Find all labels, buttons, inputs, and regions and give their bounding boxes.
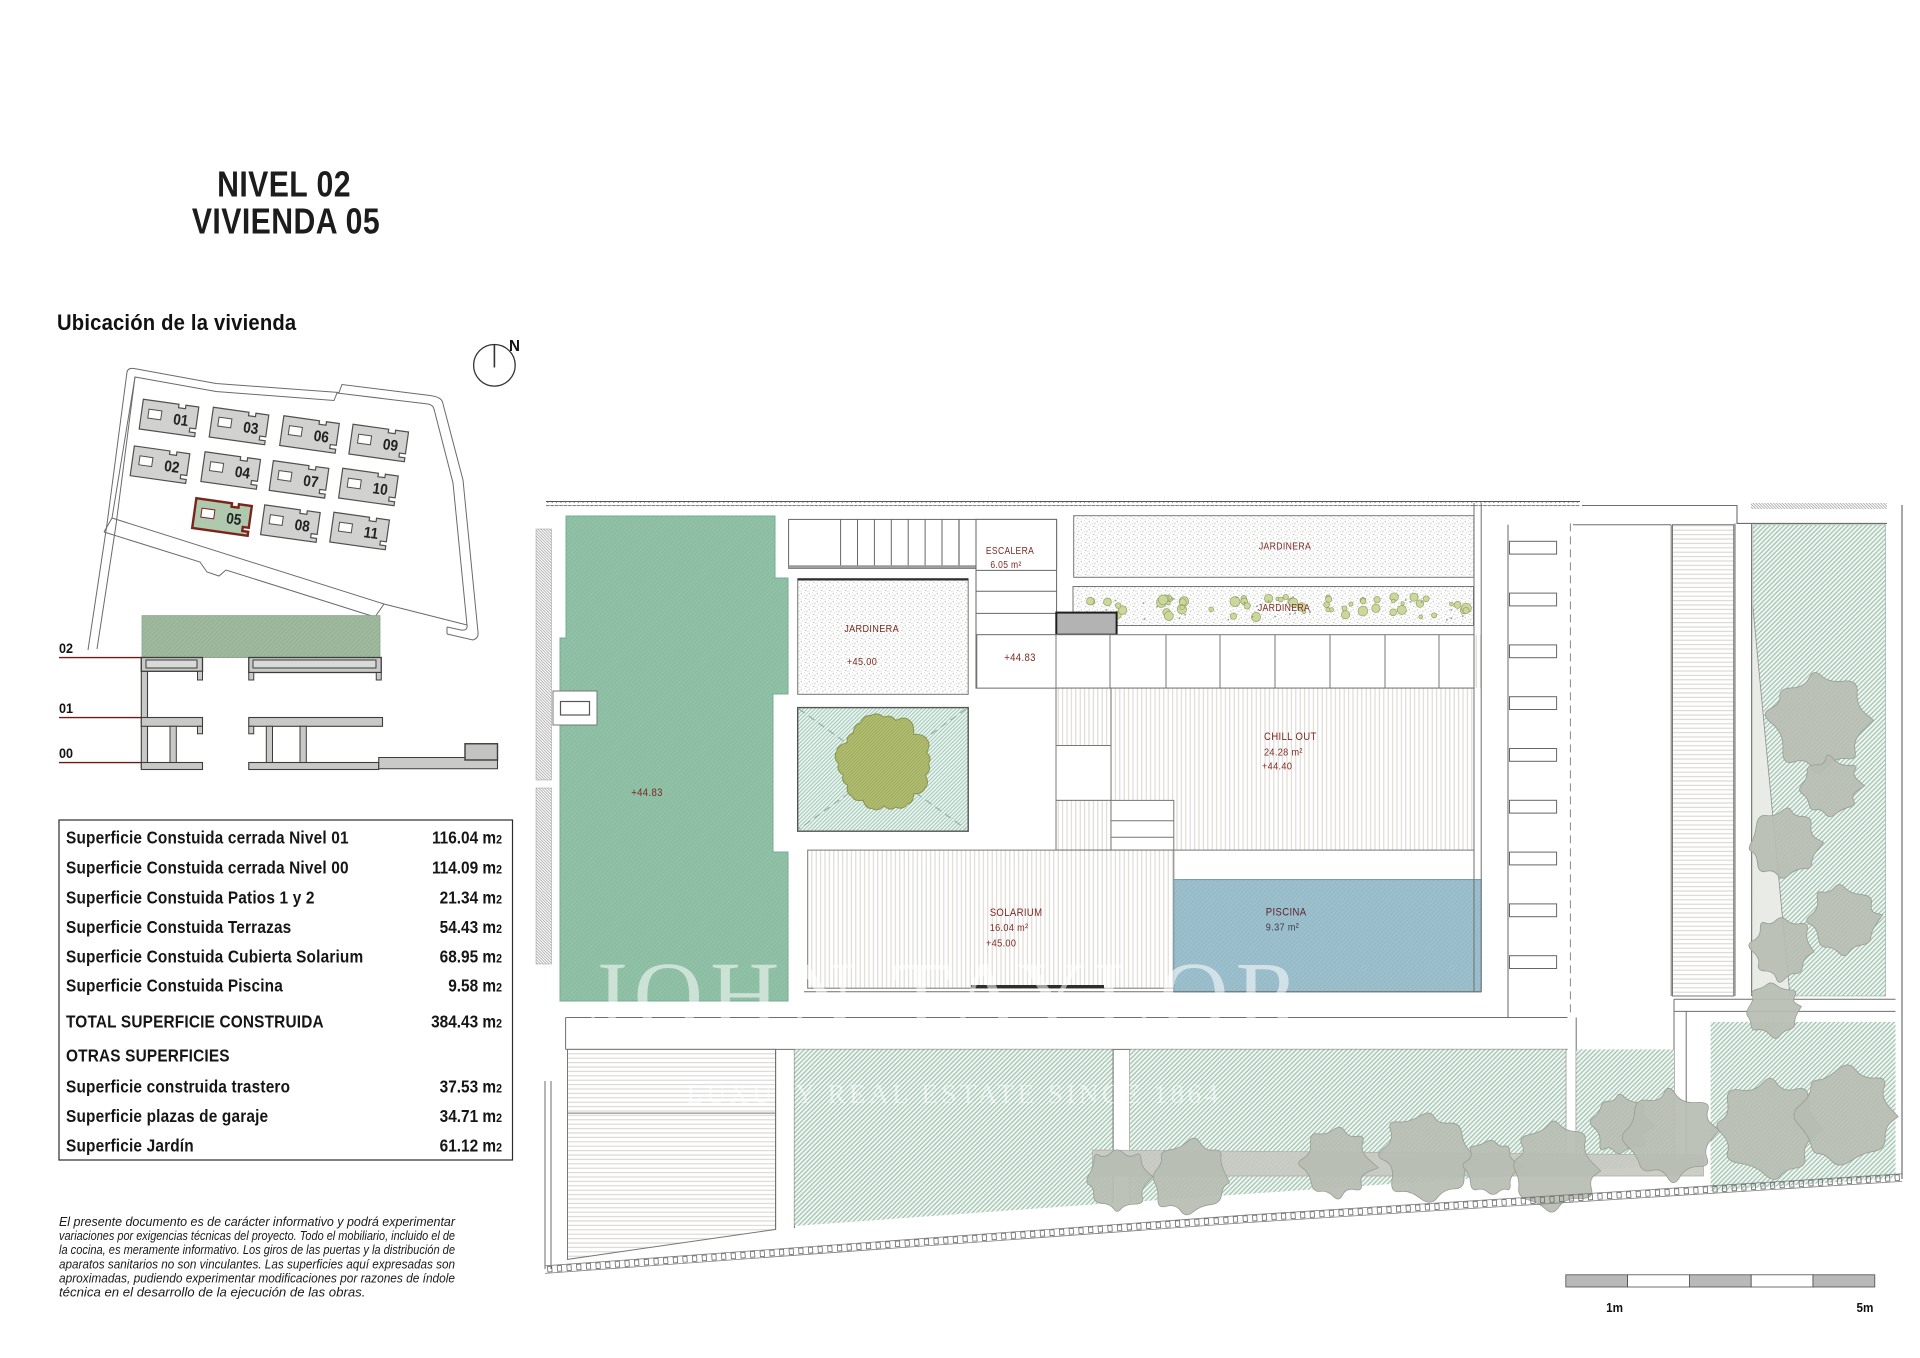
svg-text:Superficie Constuida Piscina: Superficie Constuida Piscina <box>66 977 284 996</box>
svg-text:aparatos sanitarios no son vin: aparatos sanitarios no son vinculantes. … <box>59 1256 455 1271</box>
svg-text:ESCALERA: ESCALERA <box>986 545 1035 556</box>
svg-text:Superficie Constuida Patios 1: Superficie Constuida Patios 1 y 2 <box>66 889 315 908</box>
svg-text:08: 08 <box>293 517 310 536</box>
svg-text:24.28 m²: 24.28 m² <box>1264 747 1303 759</box>
svg-text:02: 02 <box>59 640 73 656</box>
svg-text:Superficie Constuida cerrada N: Superficie Constuida cerrada Nivel 00 <box>66 859 349 878</box>
svg-text:CHILL OUT: CHILL OUT <box>1264 731 1317 743</box>
svg-text:NIVEL 02: NIVEL 02 <box>217 165 351 205</box>
svg-text:1m: 1m <box>1606 1300 1623 1315</box>
svg-text:34.71 m2: 34.71 m2 <box>440 1107 502 1126</box>
svg-text:+45.00: +45.00 <box>847 656 877 668</box>
svg-text:Superficie Constuida cerrada N: Superficie Constuida cerrada Nivel 01 <box>66 829 349 848</box>
svg-text:6.05 m²: 6.05 m² <box>990 559 1021 570</box>
svg-text:LUXURY REAL ESTATE SINCE 1864: LUXURY REAL ESTATE SINCE 1864 <box>686 1079 1221 1109</box>
svg-text:07: 07 <box>302 473 319 492</box>
svg-text:Superficie Jardín: Superficie Jardín <box>66 1137 194 1156</box>
svg-text:JOHN TAYLOR: JOHN TAYLOR <box>589 942 1306 1049</box>
svg-text:61.12 m2: 61.12 m2 <box>440 1137 502 1156</box>
svg-text:variaciones por exigencias téc: variaciones por exigencias técnicas del … <box>59 1228 455 1243</box>
svg-text:11: 11 <box>363 524 380 543</box>
svg-text:68.95 m2: 68.95 m2 <box>440 948 502 967</box>
svg-text:Superficie Constuida Cubierta: Superficie Constuida Cubierta Solarium <box>66 948 363 967</box>
svg-text:9.58 m2: 9.58 m2 <box>448 977 502 996</box>
svg-text:Superficie construida trastero: Superficie construida trastero <box>66 1078 290 1097</box>
svg-text:116.04 m2: 116.04 m2 <box>432 829 502 848</box>
svg-text:aproximadas, pudiendo experime: aproximadas, pudiendo experimentar modif… <box>59 1270 455 1285</box>
svg-text:VIVIENDA 05: VIVIENDA 05 <box>192 202 380 242</box>
svg-text:TOTAL SUPERFICIE CONSTRUIDA: TOTAL SUPERFICIE CONSTRUIDA <box>66 1013 324 1032</box>
svg-text:09: 09 <box>382 436 399 455</box>
svg-text:21.34 m2: 21.34 m2 <box>440 889 502 908</box>
svg-text:+44.83: +44.83 <box>631 787 663 799</box>
svg-text:PISCINA: PISCINA <box>1266 907 1307 919</box>
svg-text:01: 01 <box>172 411 189 430</box>
svg-text:N: N <box>509 338 520 355</box>
svg-text:JARDINERA: JARDINERA <box>844 623 899 635</box>
svg-text:37.53 m2: 37.53 m2 <box>440 1078 502 1097</box>
svg-text:JARDINERA: JARDINERA <box>1258 602 1311 613</box>
svg-text:00: 00 <box>59 745 73 761</box>
svg-text:16.04 m²: 16.04 m² <box>990 922 1029 934</box>
svg-text:114.09 m2: 114.09 m2 <box>432 859 502 878</box>
svg-text:técnica en el desarrollo de la: técnica en el desarrollo de la ejecución… <box>59 1285 365 1300</box>
svg-text:384.43 m2: 384.43 m2 <box>431 1013 502 1032</box>
svg-text:SOLARIUM: SOLARIUM <box>990 907 1043 919</box>
svg-text:54.43 m2: 54.43 m2 <box>440 918 502 937</box>
svg-text:+44.40: +44.40 <box>1262 761 1292 773</box>
svg-text:10: 10 <box>371 480 388 499</box>
svg-text:06: 06 <box>313 428 330 447</box>
svg-text:9.37 m²: 9.37 m² <box>1266 922 1300 934</box>
svg-text:El presente documento es de ca: El presente documento es de carácter inf… <box>59 1214 456 1229</box>
svg-text:Superficie plazas de garaje: Superficie plazas de garaje <box>66 1107 268 1126</box>
svg-text:03: 03 <box>242 419 259 438</box>
svg-text:la cocina, es meramente inform: la cocina, es meramente informativo. Los… <box>59 1242 455 1257</box>
svg-text:JARDINERA: JARDINERA <box>1259 541 1312 552</box>
svg-text:02: 02 <box>163 458 180 477</box>
svg-text:OTRAS SUPERFICIES: OTRAS SUPERFICIES <box>66 1047 230 1066</box>
svg-text:5m: 5m <box>1857 1300 1874 1315</box>
svg-text:Ubicación de la vivienda: Ubicación de la vivienda <box>57 311 296 335</box>
svg-text:Superficie Constuida Terrazas: Superficie Constuida Terrazas <box>66 918 291 937</box>
svg-text:01: 01 <box>59 700 74 716</box>
svg-text:+44.83: +44.83 <box>1004 652 1036 664</box>
svg-text:05: 05 <box>225 510 242 529</box>
